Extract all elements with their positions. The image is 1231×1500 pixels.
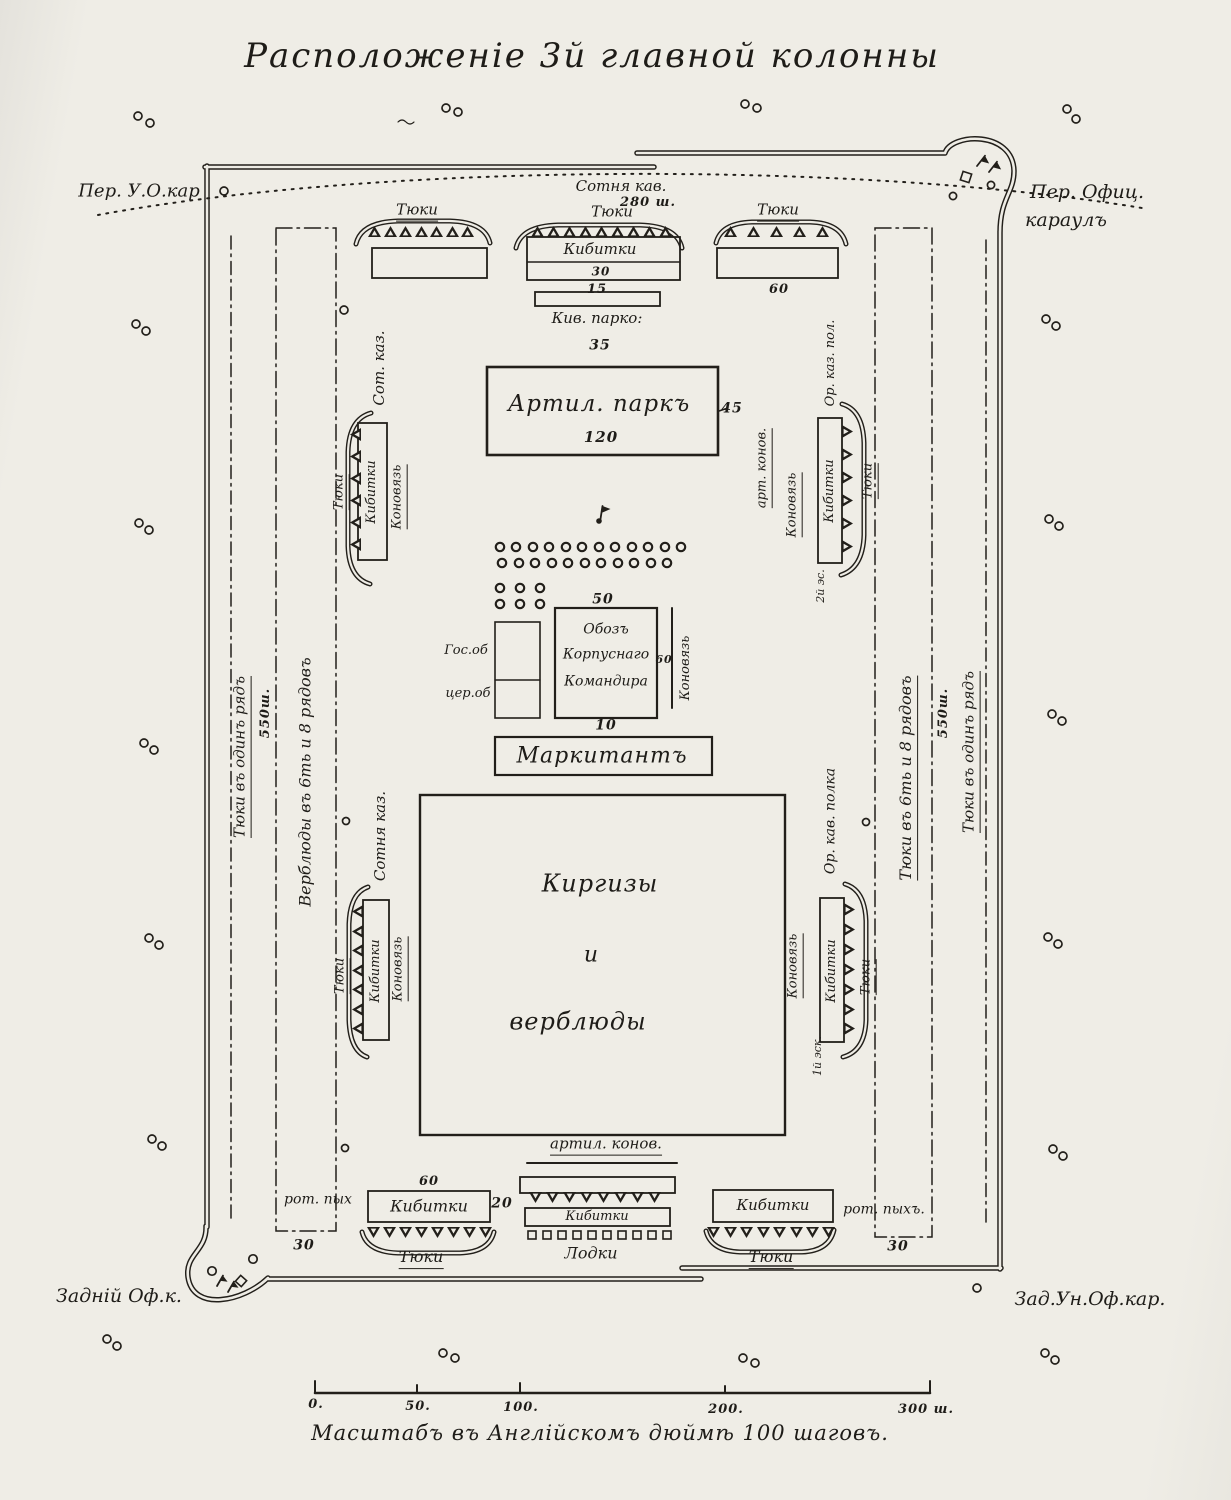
page-title: Расположеніе 3й главной колонны xyxy=(244,39,940,75)
guard-label-bottom-right: Зад.Ун.Оф.кар. xyxy=(1015,1290,1166,1310)
kirgiz-label-1: Киргизы xyxy=(542,871,659,896)
oboz-right-count: 60 xyxy=(655,654,672,666)
middle-right-tyuki-label: Тюки xyxy=(860,959,877,995)
upper-right-kibitki-label: Кибитки xyxy=(823,459,837,522)
artillery-park-side-note: 45 xyxy=(721,402,742,417)
upper-left-konovyaz-label: Коновязь xyxy=(391,465,408,530)
count-below-center: 15 xyxy=(587,283,607,297)
scale-caption: Масштабъ въ Англійскомъ дюймѣ 100 шаговъ… xyxy=(311,1422,889,1444)
bottom-right-strip-count: 30 xyxy=(887,1240,908,1255)
middle-left-konovyaz-label: Коновязь xyxy=(392,937,409,1002)
scale-tick-100: 100. xyxy=(503,1401,539,1415)
middle-left-unit-label: Сотня каз. xyxy=(373,791,389,881)
bottom-left-count-above: 60 xyxy=(419,1175,439,1189)
oboz-below-count: 10 xyxy=(595,719,616,734)
guard-post-top-right xyxy=(949,156,1003,200)
kibitki-count-top-center: 30 xyxy=(592,266,611,279)
upper-right-squadron-label: 2й эс. xyxy=(815,569,827,602)
oboz-label-1: Обозъ xyxy=(583,623,628,638)
kirgiz-label-2: и xyxy=(584,943,598,966)
scale-tick-50: 50. xyxy=(405,1400,431,1414)
tyuki-label-top-center: Тюки xyxy=(591,205,633,224)
gos-ob-label: Гос.об xyxy=(444,644,488,658)
bottom-center-art-konov-label: артил. конов. xyxy=(550,1137,662,1156)
upper-left-tyuki-label: Тюки xyxy=(333,474,350,510)
left-wall-outer-label: Тюки въ одинъ рядъ xyxy=(233,676,252,838)
bottom-right-kibitki-label: Кибитки xyxy=(737,1198,810,1214)
bottom-right-rot-label: рот. пыхъ. xyxy=(843,1203,925,1218)
bottom-center-kibitki-label: Кибитки xyxy=(565,1210,628,1224)
pen-mark xyxy=(398,120,414,124)
kib-park-label: Кив. парко: xyxy=(552,311,643,327)
upper-left-unit-label: Сот. каз. xyxy=(372,330,388,405)
kirgiz-label-3: верблюды xyxy=(509,1009,646,1034)
bottom-left-tyuki-label: Тюки xyxy=(399,1249,444,1269)
cavalry-line-label: Сотня кав. xyxy=(576,179,667,195)
bottom-left-count-right: 20 xyxy=(491,1197,512,1212)
guard-label-bottom-left: Задній Оф.к. xyxy=(56,1287,182,1307)
scale-tick-200: 200. xyxy=(708,1403,744,1417)
middle-right-kibitki-label: Кибитки xyxy=(825,939,839,1002)
kibitki-label-top-center: Кибитки xyxy=(564,242,637,258)
middle-left-tyuki-label: Тюки xyxy=(334,958,351,994)
tyuki-label-top-left: Тюки xyxy=(396,203,438,222)
left-wall-width: 550ш. xyxy=(259,688,273,738)
middle-right-regiment-label: Ор. кав. полка xyxy=(824,768,839,874)
bottom-center-lodki-label: Лодки xyxy=(565,1246,618,1263)
upper-right-konovyaz-label: Коновязь xyxy=(786,473,803,538)
middle-right-squadron-label: 1й эск. xyxy=(812,1036,824,1076)
horses-count: 50 xyxy=(592,593,613,608)
cer-ob-label: цер.об xyxy=(446,687,491,701)
right-wall-width: 550ш. xyxy=(937,688,951,738)
scale-bar xyxy=(315,1381,930,1393)
count-below-right: 60 xyxy=(769,283,789,297)
middle-left-kibitki-label: Кибитки xyxy=(369,939,383,1002)
scale-tick-0: 0. xyxy=(308,1398,324,1412)
guard-label-top-right-2: караулъ xyxy=(1025,211,1107,231)
guard-label-top-left: Пер. У.О.кар xyxy=(78,183,200,202)
scale-tick-300: 300 ш. xyxy=(898,1403,954,1417)
bottom-right-tyuki-label: Тюки xyxy=(749,1249,794,1269)
kib-park-count: 35 xyxy=(589,339,610,354)
right-wall-outer-label: Тюки въ одинъ рядъ xyxy=(962,671,981,833)
bottom-left-rot-label: рот. пых xyxy=(284,1193,352,1208)
center-konovyaz-label: Коновязь xyxy=(679,636,693,701)
bottom-left-strip-count: 30 xyxy=(293,1239,314,1254)
markitant-label: Маркитантъ xyxy=(516,744,687,767)
camp-plan-scan: Расположеніе 3й главной колонны Пер. У.О… xyxy=(0,0,1231,1500)
artillery-park-count: 120 xyxy=(584,430,618,446)
bottom-left-kibitki-label: Кибитки xyxy=(390,1199,468,1216)
tyuki-label-top-right: Тюки xyxy=(757,203,799,222)
upper-right-regiment-label: Ор. каз. пол. xyxy=(824,320,838,407)
flag-icon xyxy=(596,506,610,524)
upper-left-kibitki-label: Кибитки xyxy=(365,460,379,523)
horse-circles xyxy=(496,543,685,608)
upper-right-art-konov-label: арт. конов. xyxy=(756,428,773,508)
left-wall-inner-label: Верблюды въ 6ть и 8 рядовъ xyxy=(298,657,315,906)
oboz-label-3: Командира xyxy=(564,675,648,690)
guard-label-top-right-1: Пер. Офиц. xyxy=(1030,183,1144,203)
middle-right-konovyaz-label: Коновязь xyxy=(787,934,804,999)
artillery-park-label: Артил. паркъ xyxy=(508,392,690,416)
upper-right-tyuki-label: Тюки xyxy=(862,463,879,499)
boat-squares xyxy=(528,1231,671,1239)
oboz-label-2: Корпуснаго xyxy=(563,648,649,663)
right-wall-inner-label: Тюки въ 6ть и 8 рядовъ xyxy=(898,675,918,880)
